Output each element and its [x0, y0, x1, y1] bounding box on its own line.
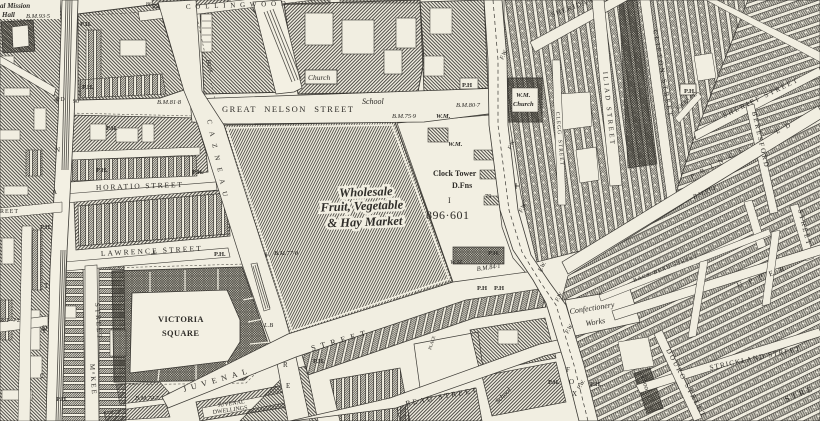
svg-text:P.H.: P.H. [313, 358, 325, 365]
svg-text:O: O [569, 378, 574, 386]
svg-text:B.M.93·5: B.M.93·5 [26, 13, 51, 20]
svg-text:P.H.: P.H. [96, 167, 108, 174]
svg-text:X: X [572, 390, 577, 398]
svg-text:Church: Church [513, 101, 534, 108]
svg-text:T: T [44, 282, 49, 290]
svg-text:B.M.77·0: B.M.77·0 [274, 250, 299, 257]
svg-text:P.H.: P.H. [684, 88, 696, 95]
svg-text:O: O [42, 324, 47, 332]
svg-text:Fruit, Vegetable: Fruit, Vegetable [319, 198, 404, 215]
svg-text:REET: REET [0, 209, 19, 215]
svg-text:B.M.81·8: B.M.81·8 [157, 99, 182, 106]
svg-text:B.M.74·7: B.M.74·7 [135, 395, 160, 402]
svg-text:D.Fns: D.Fns [452, 181, 472, 190]
svg-text:P.H.: P.H. [106, 125, 118, 132]
svg-text:Church: Church [308, 73, 330, 82]
svg-text:W.M.: W.M. [450, 259, 464, 266]
svg-text:P.H: P.H [477, 285, 487, 292]
svg-text:School: School [362, 97, 385, 106]
svg-text:P.H: P.H [462, 82, 472, 89]
svg-text:P.H.: P.H. [40, 224, 52, 231]
svg-text:W.M.: W.M. [436, 113, 451, 120]
svg-text:N: N [55, 146, 60, 154]
svg-text:Clock Tower: Clock Tower [433, 169, 477, 178]
svg-text:896·601: 896·601 [426, 208, 470, 222]
svg-text:A: A [52, 188, 57, 196]
svg-text:W.M.: W.M. [516, 92, 531, 99]
svg-text:P.H.: P.H. [214, 251, 226, 258]
svg-text:C: C [40, 372, 45, 380]
svg-text:Hall: Hall [1, 11, 15, 19]
svg-text:L.B: L.B [263, 322, 273, 329]
svg-text:P.H.: P.H. [590, 381, 602, 388]
svg-text:B.M.75·9: B.M.75·9 [392, 113, 417, 120]
svg-text:P.H.: P.H. [82, 84, 94, 91]
svg-text:B.M.80·7: B.M.80·7 [456, 102, 481, 109]
svg-text:P.H.: P.H. [488, 250, 500, 257]
svg-text:+D: +D [57, 97, 65, 103]
svg-text:& Hay Market: & Hay Market [327, 214, 403, 231]
svg-text:F: F [566, 366, 570, 374]
svg-text:P.H.: P.H. [192, 169, 204, 176]
svg-text:P.H.: P.H. [56, 396, 68, 403]
svg-text:90: 90 [73, 99, 79, 105]
svg-text:P.H.: P.H. [548, 379, 560, 386]
svg-text:GREAT NELSON STREET: GREAT NELSON STREET [222, 104, 354, 114]
svg-text:VICTORIA: VICTORIA [158, 315, 204, 324]
svg-text:E: E [286, 382, 290, 390]
svg-text:I: I [448, 196, 451, 205]
svg-text:P.H.: P.H. [80, 21, 92, 28]
svg-text:R: R [283, 361, 288, 369]
svg-text:al Mission: al Mission [0, 2, 30, 10]
svg-text:79: 79 [485, 193, 492, 200]
svg-text:P.H: P.H [494, 285, 504, 292]
svg-text:86: 86 [146, 2, 152, 8]
svg-text:SQUARE: SQUARE [162, 329, 199, 338]
svg-text:W.M.: W.M. [448, 141, 463, 148]
svg-text:ET 72: ET 72 [1, 318, 21, 324]
